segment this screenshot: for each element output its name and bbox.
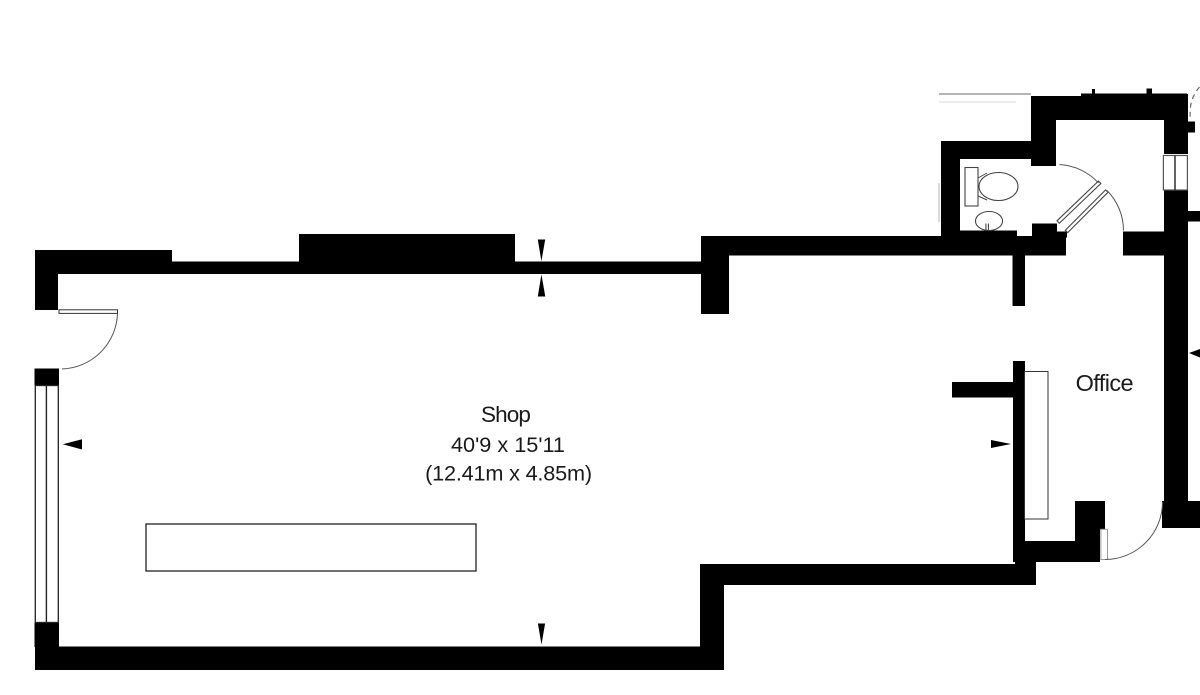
svg-text:40'9 x 15'11: 40'9 x 15'11 xyxy=(451,432,565,457)
svg-text:(12.41m x 4.85m): (12.41m x 4.85m) xyxy=(425,461,592,486)
svg-text:Office: Office xyxy=(1076,370,1134,396)
svg-text:Shop: Shop xyxy=(481,402,530,427)
